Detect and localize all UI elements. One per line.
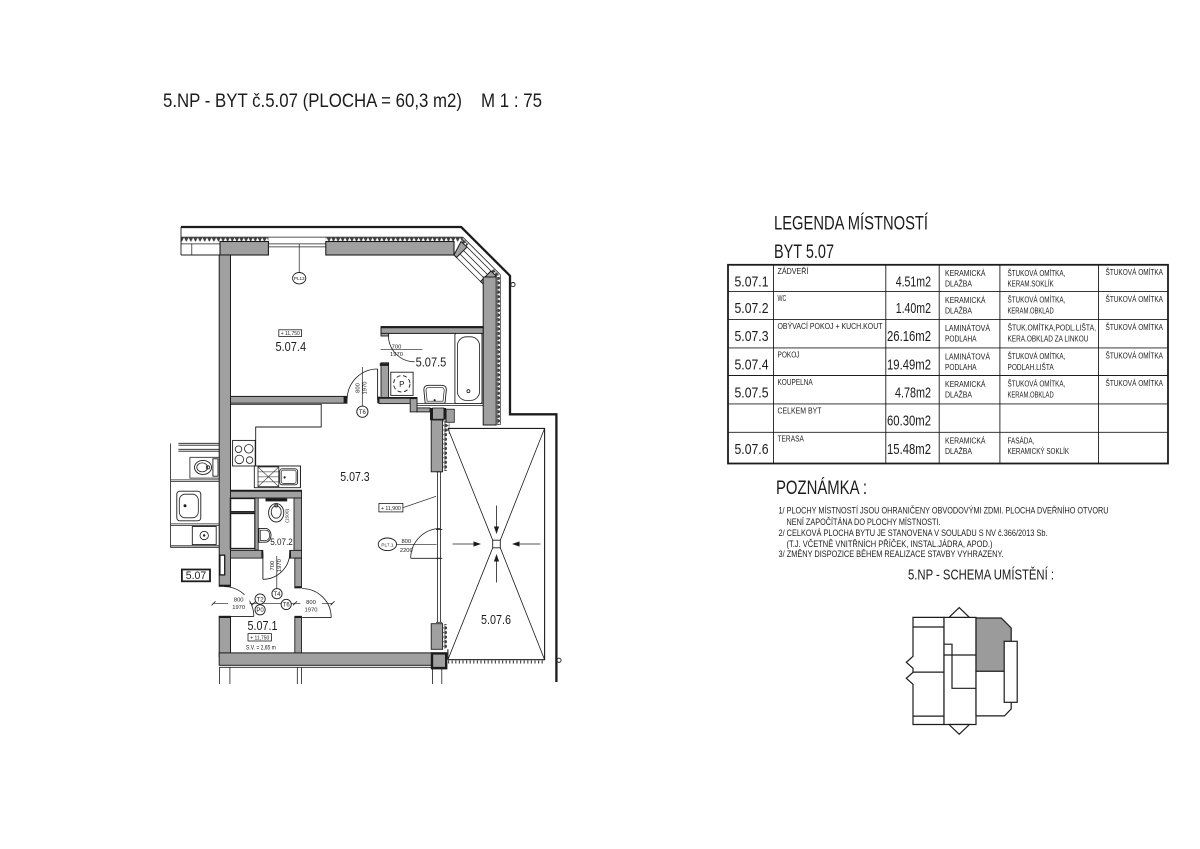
svg-text:5.07.2: 5.07.2 xyxy=(270,537,293,548)
svg-text:1970: 1970 xyxy=(363,382,369,395)
svg-text:KERAMICKÁ: KERAMICKÁ xyxy=(945,437,986,446)
svg-text:ŠTUKOVÁ OMÍTKA: ŠTUKOVÁ OMÍTKA xyxy=(1106,351,1164,360)
svg-text:19.49m2: 19.49m2 xyxy=(887,357,931,374)
svg-text:ŠTUKOVÁ OMÍTKA: ŠTUKOVÁ OMÍTKA xyxy=(1106,295,1164,304)
svg-text:1970: 1970 xyxy=(305,607,318,613)
svg-text:TERASA: TERASA xyxy=(778,435,805,444)
svg-text:+ 11,750: + 11,750 xyxy=(250,636,269,642)
svg-text:FASÁDA,: FASÁDA, xyxy=(1008,436,1035,445)
svg-text:S.V. = 2,65 m: S.V. = 2,65 m xyxy=(246,645,276,652)
svg-text:DLAŽBA: DLAŽBA xyxy=(945,280,973,289)
svg-text:P: P xyxy=(399,380,404,389)
svg-text:2/ CELKOVÁ PLOCHA BYTU JE STAN: 2/ CELKOVÁ PLOCHA BYTU JE STANOVENA V SO… xyxy=(779,528,1048,538)
svg-text:NENÍ ZAPOČÍTÁNA DO PLOCHY MÍST: NENÍ ZAPOČÍTÁNA DO PLOCHY MÍSTNOSTI. xyxy=(787,517,941,527)
svg-text:KERAMICKÝ SOKLÍK: KERAMICKÝ SOKLÍK xyxy=(1008,447,1070,456)
svg-text:1970: 1970 xyxy=(232,605,245,611)
svg-text:60.30m2: 60.30m2 xyxy=(887,413,931,430)
svg-text:PL13: PL13 xyxy=(294,276,305,281)
svg-text:KERAM.SOKLÍK: KERAM.SOKLÍK xyxy=(1008,280,1055,289)
svg-text:CELKEM BYT: CELKEM BYT xyxy=(778,406,822,415)
svg-text:KERAMICKÁ: KERAMICKÁ xyxy=(945,269,986,278)
svg-text:ŠTUKOVÁ OMÍTKA,: ŠTUKOVÁ OMÍTKA, xyxy=(1008,352,1066,361)
svg-text:1/ PLOCHY MÍSTNOSTÍ JSOU OHRAN: 1/ PLOCHY MÍSTNOSTÍ JSOU OHRANIČENY OBVO… xyxy=(779,506,1109,516)
svg-text:5.07.1: 5.07.1 xyxy=(735,274,769,291)
svg-text:5.07.6: 5.07.6 xyxy=(481,612,511,627)
svg-text:T2: T2 xyxy=(257,597,265,603)
svg-text:800: 800 xyxy=(306,600,316,606)
svg-text:(T.J. VČETNĚ VNITŘNÍCH PŘÍČEK,: (T.J. VČETNĚ VNITŘNÍCH PŘÍČEK, INSTAL.JÁ… xyxy=(787,539,993,549)
svg-text:5.07: 5.07 xyxy=(186,570,207,582)
svg-text:5.NP - SCHEMA UMÍSTĚNÍ :: 5.NP - SCHEMA UMÍSTĚNÍ : xyxy=(908,567,1054,584)
svg-text:+ 11,750: + 11,750 xyxy=(281,331,300,337)
svg-text:5.07.6: 5.07.6 xyxy=(735,441,769,458)
svg-text:1.40m2: 1.40m2 xyxy=(896,300,931,317)
svg-text:DLAŽBA: DLAŽBA xyxy=(945,306,973,315)
svg-text:LAMINÁTOVÁ: LAMINÁTOVÁ xyxy=(945,324,991,333)
svg-text:1970: 1970 xyxy=(277,559,283,572)
svg-text:5.07.1: 5.07.1 xyxy=(248,618,278,633)
svg-text:OBÝVACÍ POKOJ + KUCH.KOUT: OBÝVACÍ POKOJ + KUCH.KOUT xyxy=(778,322,883,331)
svg-text:26.16m2: 26.16m2 xyxy=(887,328,931,345)
svg-text:PL7.1: PL7.1 xyxy=(381,542,393,547)
svg-text:P0: P0 xyxy=(256,608,264,614)
svg-text:5.07.5: 5.07.5 xyxy=(735,384,769,401)
svg-text:POKOJ: POKOJ xyxy=(778,350,800,359)
svg-text:T6: T6 xyxy=(359,410,367,416)
svg-text:1970: 1970 xyxy=(390,352,403,358)
svg-text:KERA.OBKLAD ZA LINKOU: KERA.OBKLAD ZA LINKOU xyxy=(1008,334,1089,343)
svg-text:KERAMICKÁ: KERAMICKÁ xyxy=(945,380,986,389)
svg-text:LEGENDA MÍSTNOSTÍ: LEGENDA MÍSTNOSTÍ xyxy=(774,214,929,235)
svg-text:ŠTUKOVÁ OMÍTKA,: ŠTUKOVÁ OMÍTKA, xyxy=(1008,269,1066,278)
svg-text:ŠTUK.OMÍTKA,PODL.LIŠTA,: ŠTUK.OMÍTKA,PODL.LIŠTA, xyxy=(1008,323,1097,332)
svg-text:POZNÁMKA :: POZNÁMKA : xyxy=(776,478,867,499)
svg-text:KOUPELNA: KOUPELNA xyxy=(778,378,814,387)
svg-text:WC: WC xyxy=(778,294,787,303)
svg-text:ŠTUKOVÁ OMÍTKA,: ŠTUKOVÁ OMÍTKA, xyxy=(1008,295,1066,304)
svg-text:800: 800 xyxy=(234,598,244,604)
svg-text:(1500): (1500) xyxy=(285,508,291,522)
svg-text:KERAM.OBKLAD: KERAM.OBKLAD xyxy=(1008,390,1054,399)
svg-text:800: 800 xyxy=(356,383,362,393)
svg-text:ŠTUKOVÁ OMÍTKA: ŠTUKOVÁ OMÍTKA xyxy=(1106,379,1164,388)
svg-text:M 1 : 75: M 1 : 75 xyxy=(481,90,542,112)
svg-text:5.07.4: 5.07.4 xyxy=(276,339,307,354)
svg-text:2200: 2200 xyxy=(400,548,413,554)
svg-text:LAMINÁTOVÁ: LAMINÁTOVÁ xyxy=(945,352,991,361)
svg-text:KERAM.OBKLAD: KERAM.OBKLAD xyxy=(1008,306,1054,315)
svg-text:ŠTUKOVÁ OMÍTKA: ŠTUKOVÁ OMÍTKA xyxy=(1106,268,1164,277)
svg-text:+ 11,900: + 11,900 xyxy=(381,506,401,512)
svg-text:PODLAHA: PODLAHA xyxy=(945,334,977,343)
svg-text:T6: T6 xyxy=(283,603,291,609)
svg-text:5.07.4: 5.07.4 xyxy=(735,357,769,374)
svg-text:5.NP - BYT č.5.07 (PLOCHA = 60: 5.NP - BYT č.5.07 (PLOCHA = 60,3 m2) xyxy=(163,90,462,112)
svg-text:T4: T4 xyxy=(273,592,281,598)
svg-text:5.07.2: 5.07.2 xyxy=(735,300,769,317)
svg-text:ZÁDVEŘÍ: ZÁDVEŘÍ xyxy=(778,267,809,276)
svg-text:700: 700 xyxy=(392,344,402,350)
svg-text:5.07.3: 5.07.3 xyxy=(735,328,769,345)
svg-text:800: 800 xyxy=(401,539,411,545)
svg-text:15.48m2: 15.48m2 xyxy=(887,441,931,458)
svg-text:4.78m2: 4.78m2 xyxy=(895,384,931,401)
svg-text:ŠTUKOVÁ OMÍTKA,: ŠTUKOVÁ OMÍTKA, xyxy=(1008,380,1066,389)
svg-text:ŠTUKOVÁ OMÍTKA: ŠTUKOVÁ OMÍTKA xyxy=(1106,323,1164,332)
svg-text:PODLAH.LIŠTA: PODLAH.LIŠTA xyxy=(1008,363,1055,372)
svg-text:KERAMICKÁ: KERAMICKÁ xyxy=(945,296,986,305)
svg-text:BYT 5.07: BYT 5.07 xyxy=(774,242,834,263)
svg-text:5.07.5: 5.07.5 xyxy=(416,354,447,369)
svg-text:DLAŽBA: DLAŽBA xyxy=(945,447,973,456)
svg-text:4.51m2: 4.51m2 xyxy=(896,274,931,291)
svg-text:DLAŽBA: DLAŽBA xyxy=(945,390,973,399)
svg-text:5.07.3: 5.07.3 xyxy=(340,469,369,484)
svg-text:700: 700 xyxy=(270,561,276,571)
svg-text:3/ ZMĚNY DISPOZICE BĚHEM REALI: 3/ ZMĚNY DISPOZICE BĚHEM REALIZACE STAVB… xyxy=(779,549,1004,559)
svg-text:PODLAHA: PODLAHA xyxy=(945,363,977,372)
